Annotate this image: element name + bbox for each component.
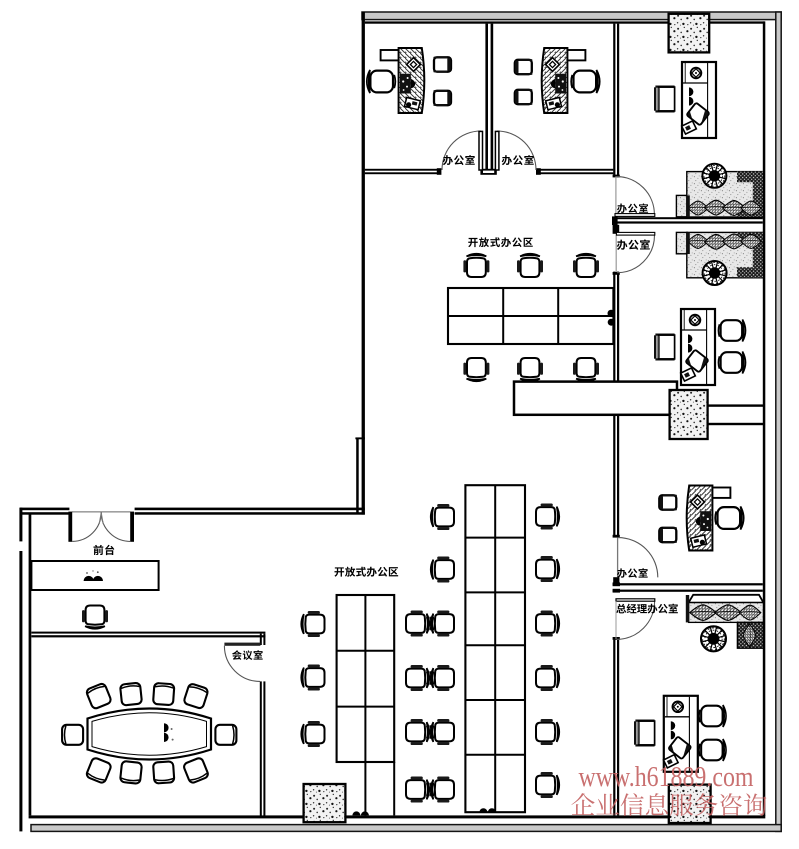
svg-text:www.h61889.com: www.h61889.com <box>579 761 754 793</box>
